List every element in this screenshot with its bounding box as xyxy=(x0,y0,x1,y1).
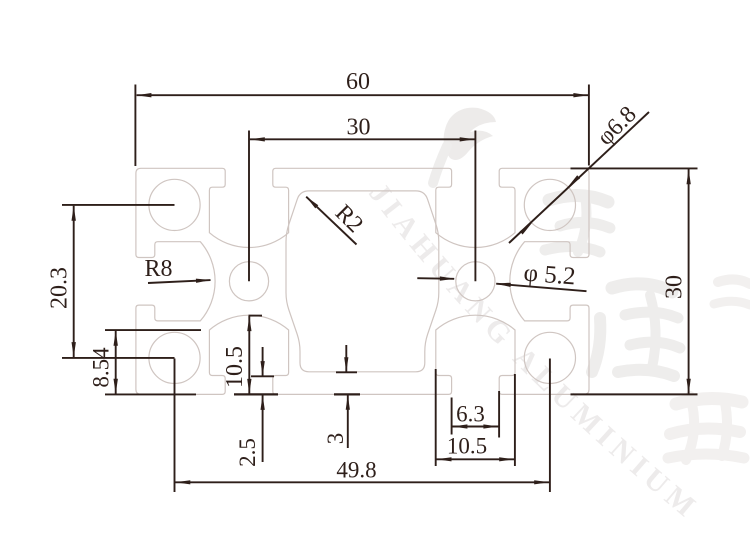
svg-text:8.54: 8.54 xyxy=(89,347,114,388)
svg-text:10.5: 10.5 xyxy=(222,346,248,388)
svg-text:20.3: 20.3 xyxy=(47,267,73,309)
svg-text:30: 30 xyxy=(347,115,371,141)
svg-text:30: 30 xyxy=(662,275,688,299)
svg-text:49.8: 49.8 xyxy=(336,458,376,483)
svg-text:φ 5.2: φ 5.2 xyxy=(523,260,577,291)
svg-text:10.5: 10.5 xyxy=(447,434,487,459)
svg-text:3: 3 xyxy=(323,433,348,445)
svg-text:60: 60 xyxy=(346,69,370,95)
svg-text:6.3: 6.3 xyxy=(456,402,485,427)
svg-text:2.5: 2.5 xyxy=(235,438,260,467)
svg-text:R8: R8 xyxy=(144,256,172,282)
